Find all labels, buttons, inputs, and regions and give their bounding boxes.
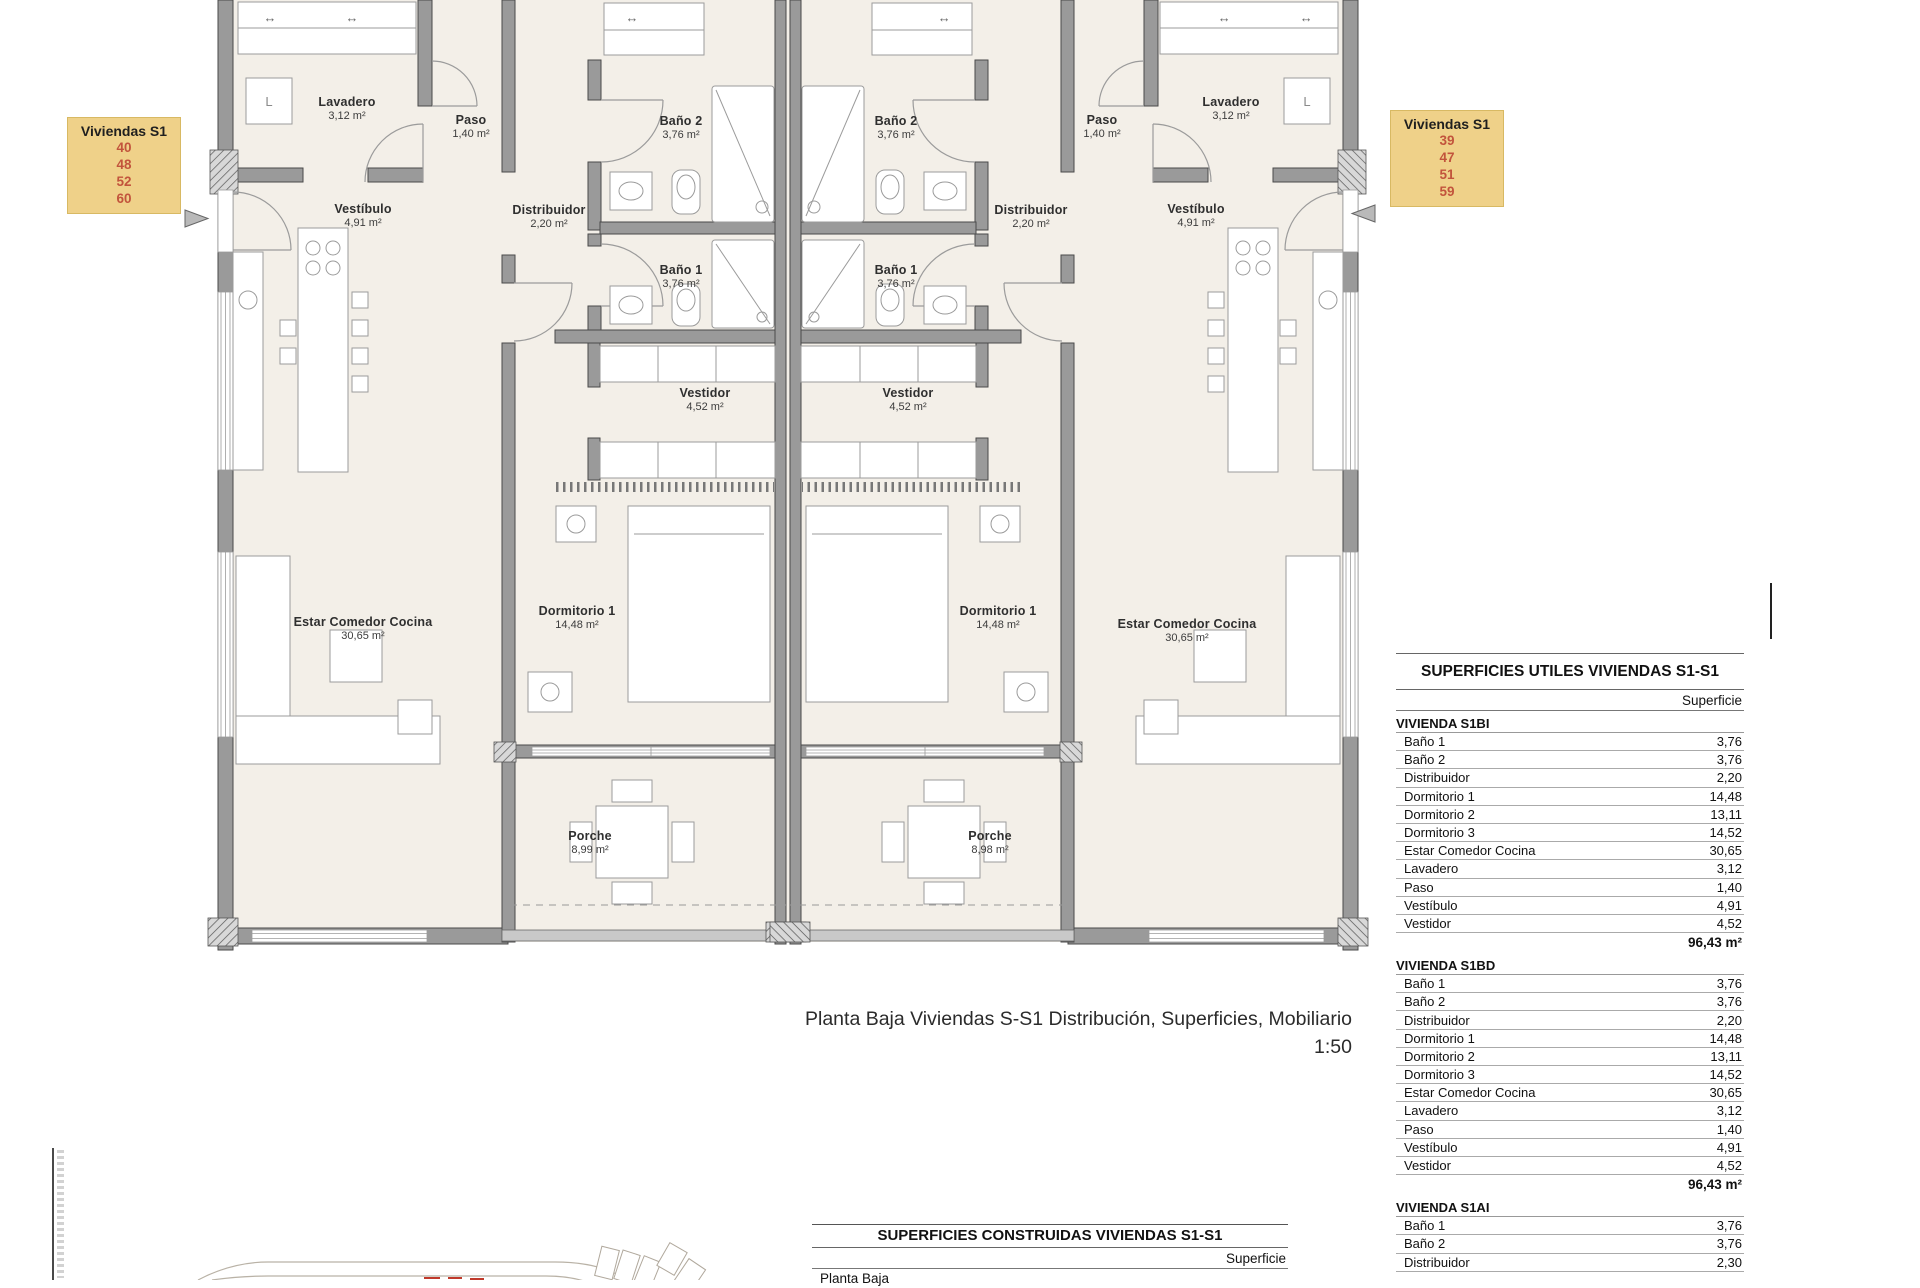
- floor-fill: [233, 0, 1343, 942]
- table-row: Vestíbulo4,91: [1396, 1139, 1744, 1157]
- table-row: Distribuidor2,30: [1396, 1254, 1744, 1272]
- slide-arrow-icon: ↔: [264, 10, 277, 25]
- room-label-bath2-right: Baño 23,76 m²: [875, 114, 918, 141]
- table-row: Distribuidor2,20: [1396, 769, 1744, 787]
- table-row: Baño 23,76: [1396, 993, 1744, 1011]
- room-label-estar-left: Estar Comedor Cocina30,65 m²: [294, 615, 433, 642]
- table-row: Estar Comedor Cocina30,65: [1396, 1084, 1744, 1102]
- sheet-margin-stamp-text: [57, 1150, 64, 1278]
- room-label-bath1-right: Baño 13,76 m²: [875, 263, 918, 290]
- room-label-lavadero-left: Lavadero3,12 m²: [318, 95, 375, 122]
- table-superficies-utiles: SUPERFICIES UTILES VIVIENDAS S1-S1 Super…: [1396, 653, 1744, 1272]
- room-label-dormitorio1-left: Dormitorio 114,48 m²: [539, 604, 616, 631]
- table-superficies-construidas: SUPERFICIES CONSTRUIDAS VIVIENDAS S1-S1 …: [812, 1224, 1288, 1288]
- section-header: VIVIENDA S1AI: [1396, 1198, 1744, 1217]
- section-total: 96,43 m²: [1396, 1175, 1744, 1195]
- red-marks: [424, 1278, 484, 1279]
- table-row: Dormitorio 314,52: [1396, 824, 1744, 842]
- bath-cabinet: [604, 3, 704, 55]
- room-label-distribuidor-right: Distribuidor2,20 m²: [994, 203, 1067, 230]
- table-row: Baño 13,76: [1396, 733, 1744, 751]
- table-row: Baño 13,76: [1396, 1217, 1744, 1235]
- table-row: Estar Comedor Cocina30,65: [1396, 842, 1744, 860]
- table-heading: SUPERFICIES UTILES VIVIENDAS S1-S1: [1396, 653, 1744, 690]
- room-label-vestidor-left: Vestidor4,52 m²: [680, 386, 731, 413]
- table-row: Vestidor4,52: [1396, 915, 1744, 933]
- room-label-porche-right: Porche8,98 m²: [968, 829, 1012, 856]
- room-label-bath1-left: Baño 13,76 m²: [660, 263, 703, 290]
- table-row: Lavadero3,12: [1396, 1102, 1744, 1120]
- sheet-margin-line: [52, 1148, 54, 1280]
- window-bottom-living: [252, 930, 427, 942]
- window-left-kitchen: [218, 292, 233, 470]
- table-row: Baño 13,76: [1396, 975, 1744, 993]
- room-label-porche-left: Porche8,99 m²: [568, 829, 612, 856]
- table-row: Vestíbulo4,91: [1396, 897, 1744, 915]
- table-row: Vestidor4,52: [1396, 1157, 1744, 1175]
- table-heading: SUPERFICIES CONSTRUIDAS VIVIENDAS S1-S1: [812, 1224, 1288, 1248]
- kitchen-furniture: [233, 228, 368, 472]
- table-row: Paso1,40: [1396, 879, 1744, 897]
- room-label-vestibulo-left: Vestíbulo4,91 m²: [334, 202, 391, 229]
- table-row: Dormitorio 114,48: [1396, 1030, 1744, 1048]
- table-row: Distribuidor2,20: [1396, 1011, 1744, 1029]
- right-edge-tick: [1770, 583, 1772, 639]
- entry-opening: [218, 190, 233, 252]
- sliding-door-bedroom: [532, 747, 770, 756]
- window-left-living: [218, 552, 233, 737]
- room-label-paso-right: Paso1,40 m²: [1083, 113, 1120, 140]
- table-row: Planta Baja: [812, 1269, 1288, 1288]
- room-label-vestibulo-right: Vestíbulo4,91 m²: [1167, 202, 1224, 229]
- table-row: Baño 23,76: [1396, 1235, 1744, 1253]
- table-row: Dormitorio 114,48: [1396, 788, 1744, 806]
- table-row: Dormitorio 314,52: [1396, 1066, 1744, 1084]
- column-header: Superficie: [1396, 690, 1744, 711]
- unit-tag-left: Viviendas S1 40 48 52 60: [67, 117, 181, 214]
- table-row: Baño 23,76: [1396, 751, 1744, 769]
- table-row: Paso1,40: [1396, 1121, 1744, 1139]
- slide-arrow-icon: ↔: [346, 10, 359, 25]
- floor-plan-sheet: { "plan": { "left_unit_tag": { "title": …: [0, 0, 1920, 1280]
- room-label-estar-right: Estar Comedor Cocina30,65 m²: [1118, 617, 1257, 644]
- room-label-vestidor-right: Vestidor4,52 m²: [883, 386, 934, 413]
- site-plan-sketch: [198, 1243, 706, 1280]
- column-header: Superficie: [812, 1248, 1288, 1269]
- room-label-lavadero-right: Lavadero3,12 m²: [1202, 95, 1259, 122]
- table-row: Dormitorio 213,11: [1396, 806, 1744, 824]
- sheet-scale: 1:50: [760, 1036, 1352, 1059]
- unit-tag-right: Viviendas S1 39 47 51 59: [1390, 110, 1504, 207]
- room-label-paso-left: Paso1,40 m²: [452, 113, 489, 140]
- section-total: 96,43 m²: [1396, 933, 1744, 953]
- washer-letter-left: L: [246, 78, 292, 124]
- table-row: Lavadero3,12: [1396, 860, 1744, 878]
- room-label-dormitorio1-right: Dormitorio 114,48 m²: [960, 604, 1037, 631]
- section-header: VIVIENDA S1BD: [1396, 956, 1744, 975]
- sheet-title: Planta Baja Viviendas S-S1 Distribución,…: [760, 1008, 1352, 1031]
- room-label-distribuidor-left: Distribuidor2,20 m²: [512, 203, 585, 230]
- slide-arrow-icon: ↔: [626, 10, 639, 25]
- room-label-bath2-left: Baño 23,76 m²: [660, 114, 703, 141]
- entry-arrow-left-icon: [185, 210, 208, 227]
- table-row: Dormitorio 213,11: [1396, 1048, 1744, 1066]
- section-header: VIVIENDA S1BI: [1396, 714, 1744, 733]
- washer-letter-right: L: [1284, 78, 1330, 124]
- sheet-title-block: Planta Baja Viviendas S-S1 Distribución,…: [760, 1008, 1352, 1059]
